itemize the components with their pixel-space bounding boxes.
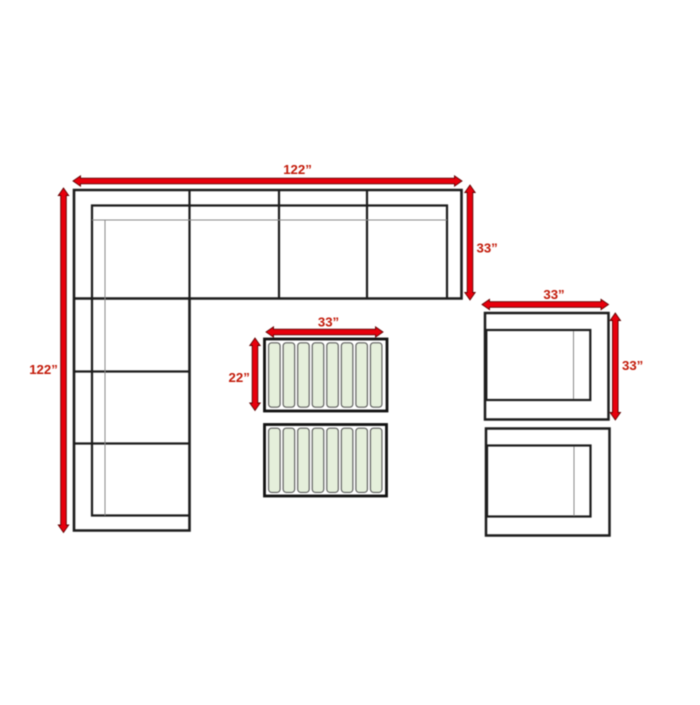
svg-text:122”: 122” (283, 162, 312, 177)
svg-text:33”: 33” (477, 241, 498, 256)
svg-text:22”: 22” (229, 370, 250, 385)
svg-text:33”: 33” (622, 358, 643, 373)
svg-text:33”: 33” (543, 287, 564, 302)
svg-text:33”: 33” (318, 314, 339, 329)
svg-text:122”: 122” (29, 362, 58, 377)
